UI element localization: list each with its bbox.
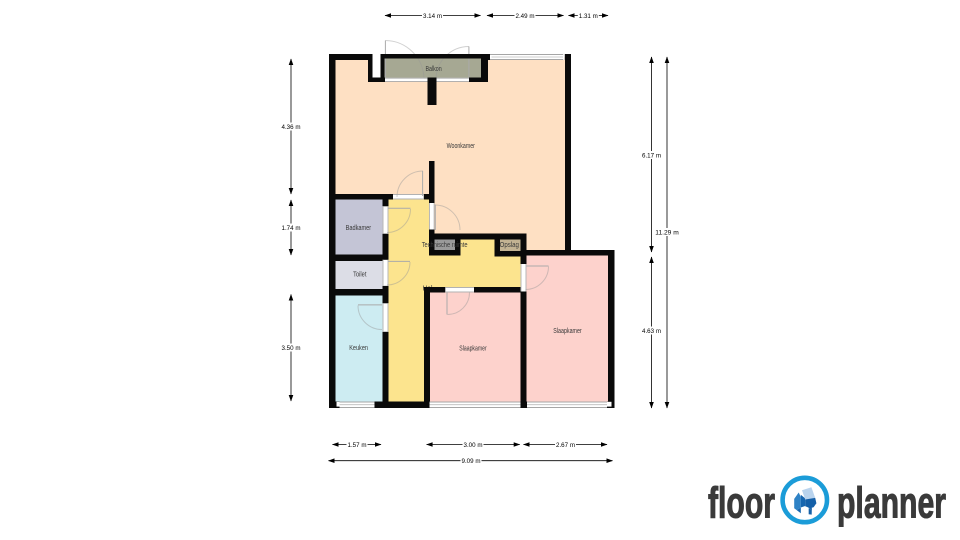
svg-text:3.00 m: 3.00 m [464, 442, 483, 449]
svg-text:4.36 m: 4.36 m [282, 124, 301, 131]
svg-text:6.17 m: 6.17 m [642, 152, 661, 159]
svg-text:1.74 m: 1.74 m [282, 225, 301, 232]
svg-text:2.49 m: 2.49 m [516, 13, 535, 20]
svg-text:1.31 m: 1.31 m [579, 13, 598, 20]
svg-text:Slaapkamer: Slaapkamer [459, 346, 487, 353]
svg-text:Balkon: Balkon [425, 66, 441, 73]
svg-text:Slaapkamer: Slaapkamer [553, 328, 582, 335]
svg-text:9.09 m: 9.09 m [462, 458, 481, 465]
svg-text:3.50 m: 3.50 m [282, 345, 301, 352]
svg-text:Woonkamer: Woonkamer [447, 143, 476, 150]
svg-text:planner: planner [837, 479, 946, 528]
svg-text:floor: floor [708, 479, 775, 528]
svg-text:3.14 m: 3.14 m [423, 13, 442, 20]
svg-text:4.63 m: 4.63 m [642, 328, 661, 335]
svg-text:2.67 m: 2.67 m [556, 442, 575, 449]
svg-text:Toilet: Toilet [353, 271, 366, 278]
svg-text:Keuken: Keuken [349, 345, 368, 352]
svg-text:11.29 m: 11.29 m [655, 229, 679, 236]
svg-text:Technische ruimte: Technische ruimte [422, 242, 468, 249]
svg-text:Badkamer: Badkamer [346, 225, 372, 232]
svg-text:Opslag: Opslag [500, 242, 519, 249]
svg-text:1.57 m: 1.57 m [348, 442, 367, 449]
